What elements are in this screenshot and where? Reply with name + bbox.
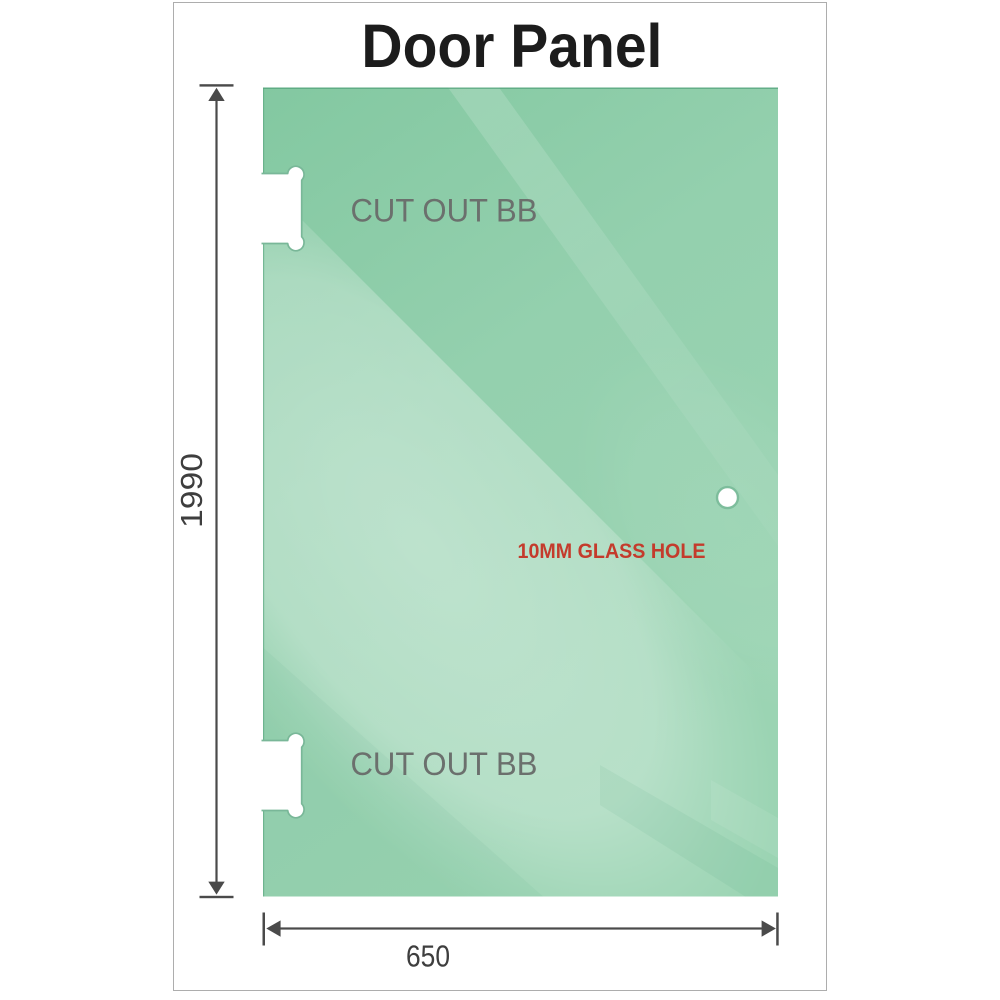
- svg-text:650: 650: [406, 939, 450, 974]
- svg-text:CUT OUT BB: CUT OUT BB: [351, 746, 538, 782]
- svg-text:CUT OUT BB: CUT OUT BB: [351, 193, 538, 229]
- svg-text:10MM GLASS HOLE: 10MM GLASS HOLE: [518, 539, 706, 563]
- svg-text:1990: 1990: [174, 453, 209, 528]
- svg-text:Door Panel: Door Panel: [361, 12, 662, 80]
